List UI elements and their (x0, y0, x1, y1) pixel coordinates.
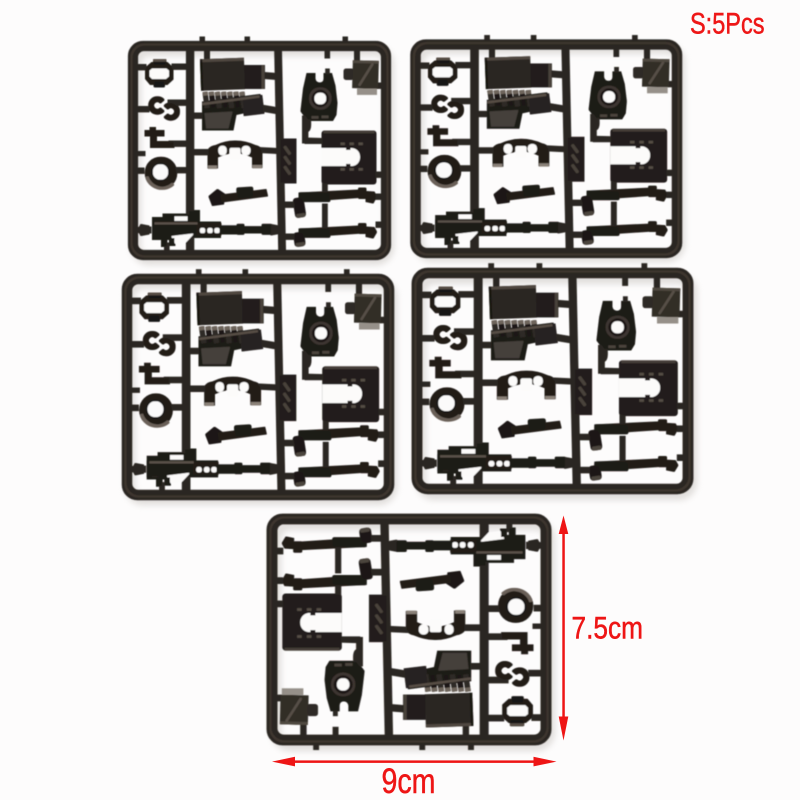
svg-text:S:5Pcs: S:5Pcs (690, 8, 765, 41)
svg-text:7.5cm: 7.5cm (572, 610, 644, 646)
svg-text:9cm: 9cm (382, 761, 436, 800)
